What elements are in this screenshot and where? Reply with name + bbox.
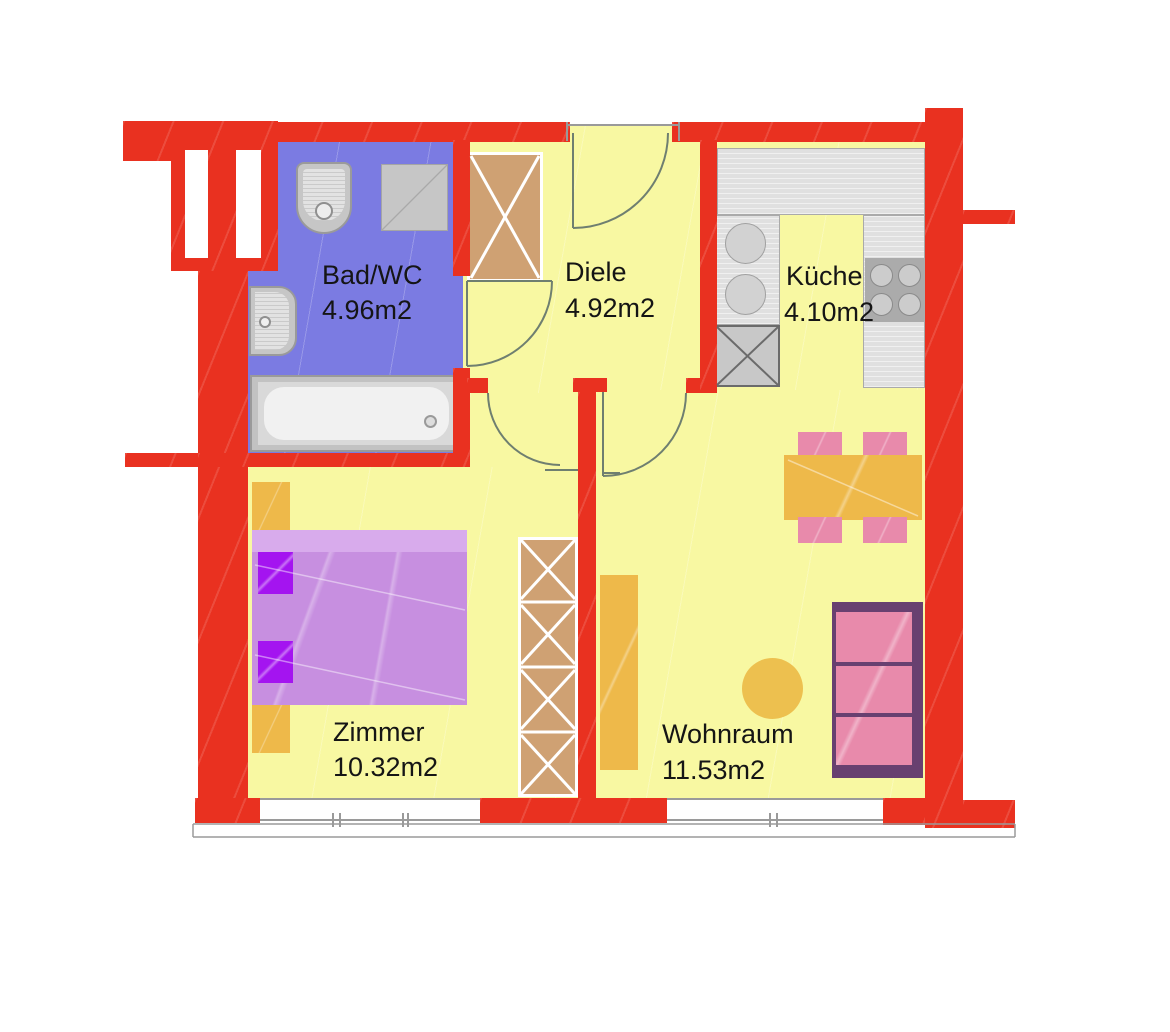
room-area-wohnraum: 11.53m2	[662, 755, 765, 786]
room-label-wohnraum: Wohnraum	[662, 719, 794, 750]
room-area-diele: 4.92m2	[565, 293, 655, 324]
hall-cabinet-x	[471, 156, 539, 278]
bedroom-door-swing	[488, 393, 578, 470]
room-area-badwc: 4.96m2	[322, 295, 412, 326]
room-area-zimmer: 10.32m2	[333, 752, 438, 783]
window-livingroom	[667, 799, 883, 827]
entrance-door-frame	[567, 122, 679, 141]
room-area-kueche: 4.10m2	[784, 297, 874, 328]
entrance-door-swing	[573, 133, 668, 228]
room-label-diele: Diele	[565, 257, 627, 288]
room-label-zimmer: Zimmer	[333, 717, 424, 748]
room-label-badwc: Bad/WC	[322, 260, 423, 291]
linework-overlay	[0, 0, 1170, 1032]
floor-plan: Bad/WC 4.96m2 Diele 4.92m2 Küche 4.10m2 …	[0, 0, 1170, 1032]
window-bedroom	[260, 799, 480, 827]
window-sill	[193, 824, 1015, 837]
cad-texture-lines	[255, 460, 918, 700]
wardrobe-x	[518, 540, 578, 794]
dishwasher-x	[717, 327, 778, 385]
room-label-kueche: Küche	[786, 261, 863, 292]
bathroom-door-swing	[467, 281, 552, 366]
livingroom-door-swing	[603, 392, 686, 476]
